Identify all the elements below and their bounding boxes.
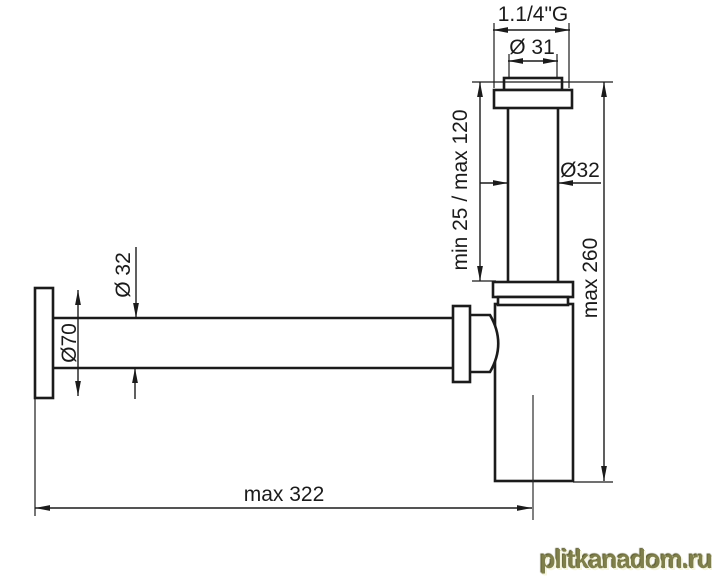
top-collar-lip (504, 78, 562, 90)
inlet-diameter-label: Ø 32 (112, 252, 135, 298)
cup-nut (493, 282, 573, 297)
drawing-canvas: 1.1/4"G Ø 31 Ø32 min 25 / max 120 max 26… (0, 0, 712, 577)
trap-body-outline (35, 78, 573, 520)
total-length-label: max 322 (244, 483, 325, 506)
flange-diameter-label: Ø70 (58, 323, 81, 363)
bottle-trap-dimension-drawing: 1.1/4"G Ø 31 Ø32 min 25 / max 120 max 26… (0, 0, 712, 577)
top-collar-nut (494, 90, 572, 108)
cup-neck (498, 297, 568, 305)
tube-diameter-label: Ø32 (560, 159, 600, 182)
height-adjustment-label: min 25 / max 120 (449, 109, 472, 270)
trap-cup (495, 304, 573, 481)
watermark: plitkanadom.ru (508, 544, 712, 574)
outlet-diameter-label: Ø 31 (509, 36, 555, 59)
inlet-connector (469, 315, 498, 372)
wall-flange (35, 288, 53, 398)
total-height-label: max 260 (579, 238, 602, 319)
thread-size-label: 1.1/4"G (498, 3, 569, 26)
inlet-nut (453, 306, 470, 382)
